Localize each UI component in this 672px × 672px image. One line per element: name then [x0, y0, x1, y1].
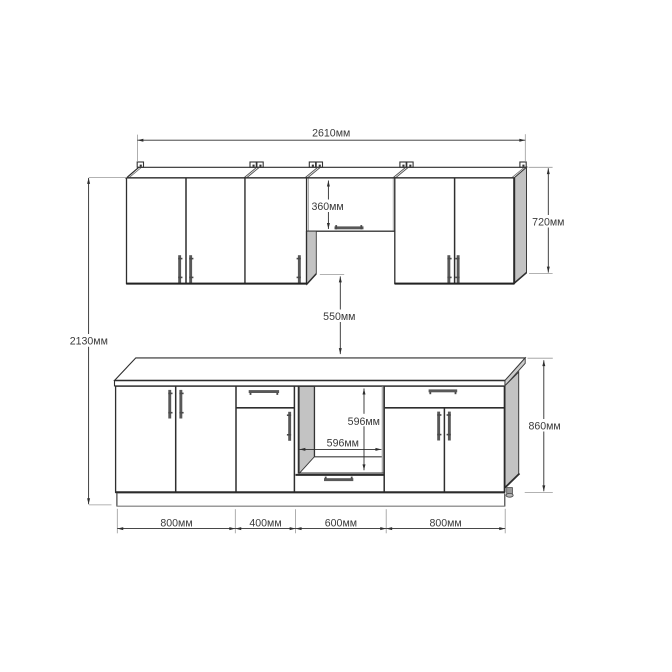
svg-text:550мм: 550мм: [323, 311, 355, 323]
svg-text:2610мм: 2610мм: [312, 128, 350, 140]
svg-text:800мм: 800мм: [160, 518, 192, 530]
svg-text:596мм: 596мм: [348, 416, 380, 428]
svg-text:400мм: 400мм: [249, 518, 281, 530]
svg-text:600мм: 600мм: [325, 518, 357, 530]
svg-text:2130мм: 2130мм: [70, 336, 108, 348]
svg-text:800мм: 800мм: [429, 518, 461, 530]
svg-text:596мм: 596мм: [327, 438, 359, 450]
svg-text:360мм: 360мм: [311, 201, 343, 213]
svg-text:720мм: 720мм: [532, 216, 564, 228]
svg-text:860мм: 860мм: [528, 420, 560, 432]
